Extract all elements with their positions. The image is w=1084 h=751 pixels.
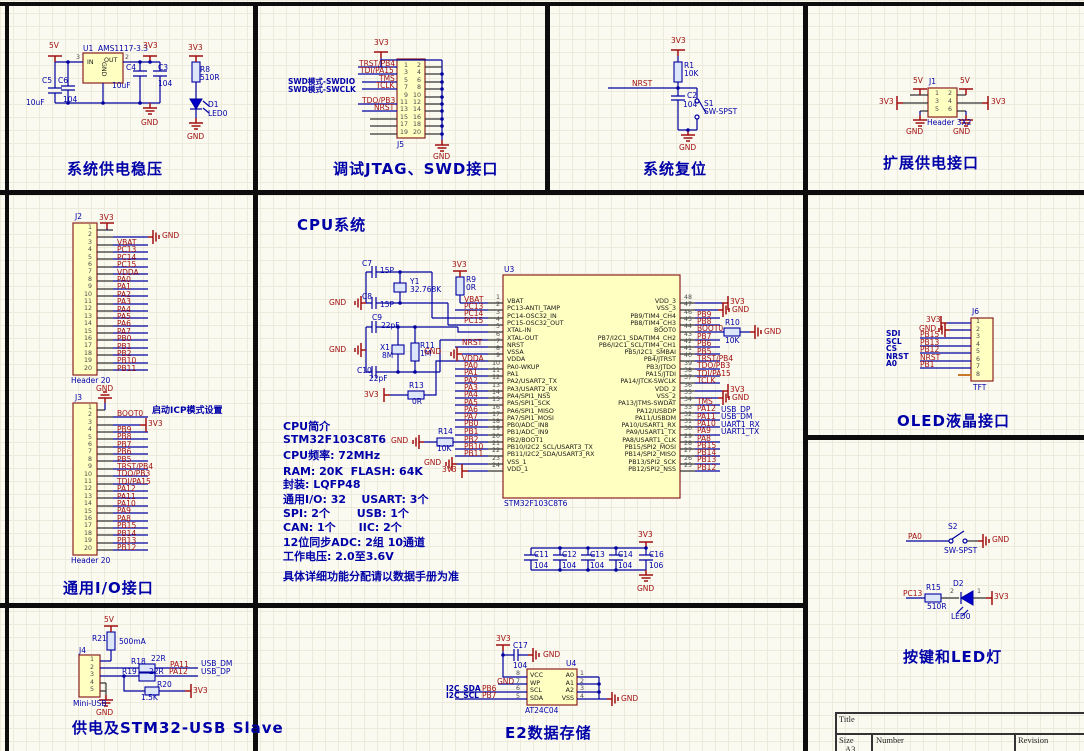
pin-number: 2 [411, 63, 421, 69]
pin-number: 15 [78, 509, 92, 515]
net-label: GND [906, 128, 923, 136]
pin-number: 6 [78, 262, 92, 268]
net-label: GND [621, 695, 638, 703]
text-label: 22R [149, 668, 164, 676]
net-label: 3V3 [926, 316, 941, 324]
pin-number: 14 [78, 501, 92, 507]
pin-name: PB13/SPI2_SCK [556, 460, 676, 466]
text-label: C6 [58, 77, 68, 85]
text-label: Header 3X2 [927, 119, 971, 127]
pin-number: 27 [684, 448, 692, 454]
net-label: BOOT0 [117, 410, 143, 418]
pin-number: 2 [580, 679, 584, 685]
pin-number: 4 [78, 247, 92, 253]
pin-number: 13 [78, 494, 92, 500]
net-label: PB1 [920, 361, 934, 369]
text-label: C7 [362, 260, 372, 268]
pin-name: SDA [530, 696, 543, 702]
net-label: GND [424, 348, 441, 356]
text-label: 32.768K [410, 286, 441, 294]
text-label: 104 [562, 562, 576, 570]
pin-number: 4 [411, 70, 421, 76]
pin-name: PA2/USART2_TX [507, 379, 557, 385]
net-label: GND [732, 394, 749, 402]
pin-number: 1 [86, 657, 94, 663]
text-label: 10K [684, 70, 698, 78]
pin-name: PA14/JTCK-SWCLK [556, 379, 676, 385]
pin-number: 6 [411, 78, 421, 84]
pin-number: 2 [125, 55, 129, 61]
text-label: 500mA [119, 638, 146, 646]
text-label: R15 [926, 584, 941, 592]
pin-number: 18 [78, 351, 92, 357]
net-label: GND [329, 346, 346, 354]
net-label: 3V3 [991, 98, 1006, 106]
pin-number: 25 [684, 463, 692, 469]
pin-number: 6 [512, 686, 520, 692]
pin-name: IN [87, 60, 94, 66]
net-label: 5V [104, 616, 114, 624]
pin-name: PA9/USART1_TX [556, 430, 676, 436]
text-label: 104 [683, 101, 697, 109]
pin-name: VSS_3 [556, 306, 676, 312]
pin-number: 43 [684, 332, 692, 338]
text-label: 106 [649, 562, 663, 570]
pin-number: 7 [78, 269, 92, 275]
section-title-cpu: CPU系统 [297, 214, 366, 235]
pin-name: PB12/SPI2_NSS [556, 467, 676, 473]
pin-number: 1 [580, 671, 584, 677]
net-label: 3V3 [879, 98, 894, 106]
pin-name: PB9/TIM4_CH4 [556, 314, 676, 320]
titleblock-number-label: Number [876, 735, 904, 745]
pin-number: 4 [580, 694, 584, 700]
net-label: PB12 [117, 544, 136, 552]
info-text: CPU频率: 72MHz [283, 450, 380, 461]
text-label: LED0 [951, 613, 970, 621]
net-label: PB7 [482, 692, 496, 700]
pin-number: 5 [512, 694, 520, 700]
pin-number: 5 [486, 324, 500, 330]
info-text: 通用I/O: 32 USART: 3个 [283, 494, 428, 505]
pin-number: 17 [78, 523, 92, 529]
pin-number: 9 [398, 93, 408, 99]
text-label: C13 [590, 551, 605, 559]
pin-number: 3 [398, 70, 408, 76]
text-label: C16 [649, 551, 664, 559]
pin-number: 17 [78, 343, 92, 349]
text-label: J2 [75, 213, 82, 221]
pin-number: 12 [411, 100, 421, 106]
text-label: UART1_TX [721, 428, 759, 436]
info-text: 封装: LQFP48 [283, 479, 360, 490]
net-label: 3V3 [638, 531, 653, 539]
net-label: 5V [913, 77, 923, 85]
pin-number: 19 [398, 130, 408, 136]
text-label: SWD模式-SWCLK [288, 86, 356, 94]
pin-name: PC13-ANTI_TAMP [507, 306, 560, 312]
text-label: 10uF [26, 99, 45, 107]
pin-number: 1 [78, 405, 92, 411]
section-title-eeprom: E2数据存储 [505, 722, 592, 743]
net-label: GND [141, 119, 158, 127]
net-label: 3V3 [188, 44, 203, 52]
pin-number: 5 [931, 107, 939, 113]
net-label: GND [732, 306, 749, 314]
pin-number: 3 [78, 420, 92, 426]
pin-number: 12 [486, 375, 500, 381]
pin-name: VSS [546, 696, 574, 702]
pin-number: 3 [976, 334, 980, 340]
text-label: 0R [466, 284, 476, 292]
net-label: NRST [462, 339, 482, 347]
pin-number: 16 [78, 336, 92, 342]
text-label: 10K [437, 445, 451, 453]
text-label: C5 [42, 77, 52, 85]
info-text: CPU简介 [283, 421, 330, 432]
text-label: 104 [63, 96, 77, 104]
text-label: SW-SPST [944, 547, 977, 555]
pin-name: BOOT0 [556, 328, 676, 334]
net-label: 3V3 [452, 261, 467, 269]
net-label: 3V3 [148, 420, 163, 428]
pin-name: PA5/SPI1_SCK [507, 401, 550, 407]
net-label: NRST [374, 104, 394, 112]
text-label: U4 [566, 660, 576, 668]
pin-number: 1 [78, 225, 92, 231]
pin-name: A2 [546, 688, 574, 694]
net-label: 3V3 [442, 466, 457, 474]
text-label: S2 [948, 523, 958, 531]
text-label: R13 [409, 382, 424, 390]
text-label: J3 [75, 394, 82, 402]
pin-number: 2 [78, 412, 92, 418]
pin-number: 9 [486, 353, 500, 359]
pin-number: 8 [976, 372, 980, 378]
pin-number: 19 [486, 426, 500, 432]
section-title-gpio: 通用I/O接口 [63, 577, 154, 598]
pin-number: 8 [411, 85, 421, 91]
net-label: PA12 [169, 668, 188, 676]
section-title-power-reg: 系统供电稳压 [67, 158, 163, 179]
pin-number: 17 [398, 122, 408, 128]
pin-name: VSS_1 [507, 460, 526, 466]
text-label: STM32F103C8T6 [504, 500, 567, 508]
text-label: 0R [412, 398, 422, 406]
pin-name: A0 [546, 673, 574, 679]
net-label: TCLK [376, 82, 394, 90]
titleblock-title-label: Title [839, 714, 855, 724]
text-label: C4 [126, 64, 136, 72]
info-text: CAN: 1个 IIC: 2个 [283, 522, 402, 533]
net-label: 3V3 [671, 37, 686, 45]
pin-number: 44 [684, 324, 692, 330]
pin-number: 36 [684, 383, 692, 389]
net-label: GND [953, 128, 970, 136]
pin-name: PA3/USART2_RX [507, 387, 557, 393]
text-label: 104 [618, 562, 632, 570]
pin-number: 19 [78, 538, 92, 544]
section-title-usb: 供电及STM32-USB Slave [72, 717, 284, 738]
pin-number: 3 [931, 99, 939, 105]
pin-number: 18 [411, 122, 421, 128]
net-label: 3V3 [99, 214, 114, 222]
net-label: GND [187, 133, 204, 141]
text-label: C12 [562, 551, 577, 559]
text-label: 104 [590, 562, 604, 570]
pin-number: 18 [78, 531, 92, 537]
net-label: GND [637, 585, 654, 593]
pin-number: 37 [684, 375, 692, 381]
text-label: R19 [122, 668, 137, 676]
pin-name: PB7/I2C1_SDA/TIM4_CH2 [556, 336, 676, 342]
pin-number: 47 [684, 302, 692, 308]
pin-number: 5 [86, 687, 94, 693]
info-text: 具体详细功能分配请以数据手册为准 [283, 571, 459, 582]
pin-number: 4 [86, 680, 94, 686]
net-label: GND [543, 651, 560, 659]
pin-number: 11 [78, 479, 92, 485]
net-label: TCLK [697, 377, 715, 385]
pin-name: A1 [546, 681, 574, 687]
text-label: 1.5K [141, 694, 158, 702]
pin-number: 1 [398, 63, 408, 69]
pin-number: 46 [684, 310, 692, 316]
text-label: 10K [725, 337, 739, 345]
info-text: SPI: 2个 USB: 1个 [283, 508, 409, 519]
text-label: A0 [886, 360, 897, 368]
pin-name: XTAL-OUT [507, 336, 538, 342]
pin-name: WP [530, 681, 540, 687]
pin-number: 16 [78, 516, 92, 522]
text-label: R21 [92, 635, 107, 643]
titleblock-size-value: A3 [845, 744, 855, 751]
pin-number: 3 [76, 55, 80, 61]
text-label: J4 [79, 647, 86, 655]
text-label: R20 [157, 681, 172, 689]
pin-number: 14 [78, 321, 92, 327]
text-label: I2C_SCL [446, 692, 479, 700]
pin-number: 2 [976, 327, 980, 333]
pin-number: 23 [486, 456, 500, 462]
text-label: 510R [927, 603, 947, 611]
net-label: GND [424, 459, 441, 467]
pin-number: 16 [486, 405, 500, 411]
text-label: 15P [380, 267, 394, 275]
section-title-reset: 系统复位 [643, 158, 707, 179]
text-label: C8 [362, 293, 372, 301]
pin-number: 6 [78, 442, 92, 448]
section-title-jtag: 调试JTAG、SWD接口 [333, 158, 498, 179]
net-label: GND [992, 536, 1009, 544]
pin-name: SCL [530, 688, 542, 694]
pin-name: PB14/SPI2_MISO [556, 452, 676, 458]
text-label: U3 [504, 266, 514, 274]
pin-name: PB1/ADC_IN9 [507, 430, 549, 436]
schematic-canvas: 5VU1AMS1117-3.33V33V332INOUTGNDC5C610410… [0, 0, 1084, 751]
net-label: GND [391, 437, 408, 445]
net-label: PC13 [903, 590, 922, 598]
pin-name: PA6/SPI1_MISO [507, 409, 554, 415]
text-label: C17 [513, 642, 528, 650]
pin-number: 2 [486, 302, 500, 308]
pin-number: 12 [78, 306, 92, 312]
pin-number: 19 [78, 358, 92, 364]
pin-number: 3 [580, 686, 584, 692]
pin-number: 11 [398, 100, 408, 106]
text-label: AMS1117-3.3 [98, 45, 148, 53]
pin-number: 30 [684, 426, 692, 432]
text-label: 104 [534, 562, 548, 570]
text-label: 启动ICP模式设置 [152, 407, 223, 416]
pin-name: PA12/USBDP [556, 409, 676, 415]
pin-number: 24 [486, 463, 500, 469]
pin-number: 2 [944, 91, 952, 97]
pin-number: 40 [684, 353, 692, 359]
text-label: USB_DP [201, 668, 230, 676]
pin-number: 5 [78, 255, 92, 261]
pin-number: 15 [78, 329, 92, 335]
text-label: 8M [382, 352, 393, 360]
text-label: 22pF [381, 322, 400, 330]
net-label: 3V3 [496, 635, 511, 643]
pin-number: 20 [78, 366, 92, 372]
pin-number: 6 [976, 357, 980, 363]
text-label: 104 [513, 662, 527, 670]
pin-number: 7 [512, 679, 520, 685]
text-label: U1 [83, 45, 93, 53]
pin-name: PB4/JTRST [556, 357, 676, 363]
net-label: GND [764, 328, 781, 336]
pin-number: 16 [411, 115, 421, 121]
net-label: 5V [49, 42, 59, 50]
text-label: R18 [131, 658, 146, 666]
pin-number: 13 [78, 314, 92, 320]
pin-number: 7 [78, 449, 92, 455]
pin-name: PA13/JTMS-SWDAT [556, 401, 676, 407]
pin-number: 6 [486, 332, 500, 338]
pin-number: 14 [411, 107, 421, 113]
pin-number: 10 [411, 93, 421, 99]
info-text: 12位同步ADC: 2组 10通道 [283, 537, 425, 548]
pin-number: 8 [78, 277, 92, 283]
pin-number: 1 [976, 319, 980, 325]
net-label: GND [162, 232, 179, 240]
text-label: Header 20 [71, 557, 110, 565]
pin-number: 8 [78, 457, 92, 463]
pin-number: 9 [78, 284, 92, 290]
pin-number: 2 [86, 665, 94, 671]
pin-name: XTAL-IN [507, 328, 531, 334]
pin-number: 4 [78, 427, 92, 433]
text-label: 10uF [112, 82, 131, 90]
text-label: C3 [158, 64, 168, 72]
pin-number: 13 [398, 107, 408, 113]
net-label: NRST [632, 80, 652, 88]
net-label: 3V3 [193, 687, 208, 695]
pin-number: 5 [78, 435, 92, 441]
pin-name: VDD_2 [556, 387, 676, 393]
net-label: GND [679, 144, 696, 152]
pin-name: PC14-OSC32_IN [507, 314, 557, 320]
net-label: 5V [960, 77, 970, 85]
pin-number: 13 [486, 383, 500, 389]
pin-number: 3 [78, 240, 92, 246]
pin-number: 1 [977, 589, 981, 595]
text-label: 510R [200, 74, 220, 82]
pin-number: 8 [512, 671, 520, 677]
pin-number: 15 [398, 115, 408, 121]
net-label: PA0 [908, 533, 922, 541]
info-text: STM32F103C8T6 [283, 434, 386, 445]
pin-number: 9 [78, 464, 92, 470]
pin-number: 2 [950, 589, 954, 595]
section-title-key-led: 按键和LED灯 [903, 646, 1002, 667]
text-label: D2 [953, 580, 964, 588]
label-layer: 5VU1AMS1117-3.33V33V332INOUTGNDC5C610410… [0, 0, 1084, 751]
pin-number: 5 [398, 78, 408, 84]
net-label: 3V3 [143, 42, 158, 50]
pin-number: 7 [398, 85, 408, 91]
net-label: PB11 [464, 450, 483, 458]
titleblock-revision-label: Revision [1018, 735, 1048, 745]
text-label: C2 [687, 92, 697, 100]
pin-number: 10 [78, 292, 92, 298]
pin-name: VDD_1 [507, 467, 528, 473]
info-text: 工作电压: 2.0至3.6V [283, 551, 394, 562]
text-label: TFT [973, 384, 986, 392]
pin-number: 11 [78, 299, 92, 305]
text-label: SW-SPST [704, 108, 737, 116]
text-label: 22R [151, 655, 166, 663]
pin-name: GND [100, 62, 106, 76]
info-text: RAM: 20K FLASH: 64K [283, 466, 423, 477]
pin-name: VDDA [507, 357, 525, 363]
pin-number: 5 [976, 349, 980, 355]
text-label: J6 [972, 308, 979, 316]
pin-number: 3 [486, 310, 500, 316]
pin-number: 3 [86, 672, 94, 678]
pin-number: 20 [411, 130, 421, 136]
section-title-oled: OLED液晶接口 [897, 410, 1010, 431]
net-label: PC15 [464, 317, 483, 325]
text-label: R14 [438, 428, 453, 436]
pin-number: 2 [78, 232, 92, 238]
text-label: LED0 [208, 110, 227, 118]
net-label: GND [96, 385, 113, 393]
pin-number: 6 [944, 107, 952, 113]
net-label: GND [96, 709, 113, 717]
pin-number: 20 [78, 546, 92, 552]
text-label: 15P [380, 301, 394, 309]
text-label: Mini-USB [73, 700, 107, 708]
pin-number: 4 [976, 342, 980, 348]
pin-number: 33 [684, 405, 692, 411]
text-label: C14 [618, 551, 633, 559]
net-label: PB12 [697, 464, 716, 472]
pin-number: 1 [931, 91, 939, 97]
net-label: 3V3 [364, 391, 379, 399]
pin-number: 10 [78, 472, 92, 478]
pin-number: 22 [486, 448, 500, 454]
net-label: GND [329, 299, 346, 307]
pin-number: 34 [684, 397, 692, 403]
text-label: AT24C04 [525, 707, 558, 715]
text-label: D1 [208, 101, 219, 109]
text-label: R10 [725, 319, 740, 327]
pin-number: 4 [944, 99, 952, 105]
net-label: PB11 [117, 365, 136, 373]
